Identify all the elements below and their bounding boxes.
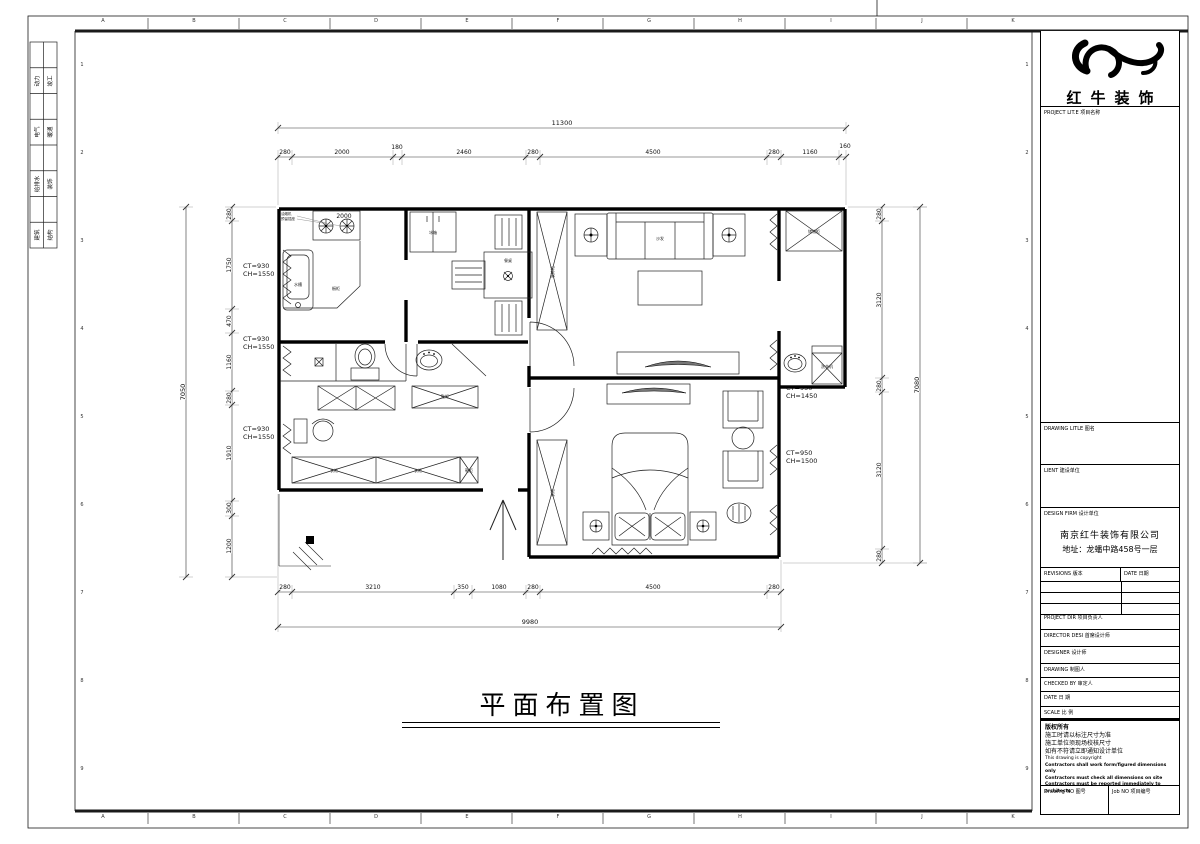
window-tag: CH=1450: [786, 392, 817, 400]
director-section: DIRECTOR DESI 首席设计师: [1041, 630, 1179, 647]
coffee-table: [638, 271, 702, 305]
table-lamp-icon: [504, 272, 513, 281]
side-table: [713, 214, 745, 256]
project-title-label: PROJECT LIT.E 项目名称: [1041, 107, 1179, 118]
drawing-by-label: DRAWING 制图人: [1041, 664, 1179, 675]
client-label: LIENT 建设单位: [1041, 465, 1179, 476]
dining-chair: [495, 215, 522, 249]
bedroom: [537, 384, 763, 545]
drawing-no-label: Drawing NO 图号: [1041, 786, 1109, 814]
dim-label: 2460: [456, 149, 471, 156]
wardrobe: [292, 457, 460, 483]
window-coil: [283, 424, 291, 454]
dim-label: 280: [527, 584, 539, 591]
grid-number: 7: [77, 590, 87, 596]
armchair: [723, 451, 763, 488]
label-counter: 橱柜: [332, 285, 340, 291]
dim-label: 1750: [226, 257, 233, 272]
grid-letter: D: [369, 18, 383, 24]
dim-label: 350: [457, 584, 469, 591]
grid-letter: B: [187, 814, 201, 820]
grid-number: 9: [1022, 766, 1032, 772]
washbasin: [784, 354, 806, 372]
dim-right-overall: 7080: [913, 377, 921, 394]
grid-letter: A: [96, 18, 110, 24]
door-living: [530, 322, 574, 366]
revision-row: [1041, 582, 1179, 593]
title-underline-thin: [402, 727, 720, 728]
window-tag: CT=930: [243, 425, 269, 433]
dim-label: 300: [226, 502, 233, 514]
cabinet: [318, 386, 395, 410]
window-coil: [770, 214, 777, 250]
round-table: [732, 427, 754, 449]
grid-letter: I: [824, 814, 838, 820]
job-no-label: Job NO 项目编号: [1109, 786, 1179, 814]
counter-edge: [283, 241, 360, 308]
window-tag: CH=1550: [243, 433, 274, 441]
revisions-label: REVISIONS 版本: [1041, 568, 1121, 581]
entry-arrow: [490, 500, 516, 560]
dim-label: 3210: [365, 584, 380, 591]
discipline-label: 建筑: [33, 229, 41, 241]
project-dir-label: PROJECT DIR 项目负责人: [1041, 612, 1179, 623]
walls: [279, 209, 845, 557]
dim-label: 280: [876, 208, 883, 220]
discipline-label: 暖通: [46, 126, 54, 138]
label-shoe: 鞋柜: [441, 393, 449, 399]
label-sink: 水槽: [294, 281, 302, 287]
dim-label: 4500: [645, 149, 660, 156]
dim-label: 280: [768, 584, 780, 591]
copyright-line: Contractors shall work form/figured dime…: [1045, 763, 1175, 776]
label-wardrobe: 衣柜: [414, 467, 422, 473]
grid-number: 8: [1022, 678, 1032, 684]
toilet: [351, 344, 379, 380]
dim-label: 280: [876, 380, 883, 392]
grid-number: 9: [77, 766, 87, 772]
grid-number: 8: [77, 678, 87, 684]
dim-left-overall: 7050: [179, 384, 187, 401]
window-tag: CT=930: [243, 335, 269, 343]
grid-number: 5: [77, 414, 87, 420]
grid-letter: J: [915, 814, 929, 820]
grid-number: 4: [1022, 326, 1032, 332]
grid-letter: D: [369, 814, 383, 820]
discipline-label: 给排水: [33, 175, 41, 192]
copyright-section: 版权所有 施工时请以标注尺寸为准 施工单位须现场校核尺寸 如有不符请立即通知设计…: [1041, 719, 1179, 786]
dim-label: 280: [226, 208, 233, 220]
director-label: DIRECTOR DESI 首席设计师: [1041, 630, 1179, 641]
label-wardrobe: 衣柜: [330, 467, 338, 473]
tv-icon: [645, 361, 711, 367]
tv-icon: [622, 388, 686, 393]
grid-number: 3: [77, 238, 87, 244]
dim-label: 3120: [876, 462, 883, 477]
balcony: [784, 211, 842, 384]
company-name: 红牛装饰: [1041, 87, 1179, 108]
checked-by-label: CHECKED BY 审定人: [1041, 678, 1179, 689]
dim-label: 280: [768, 149, 780, 156]
nightstand: [583, 512, 609, 540]
project-dir-section: PROJECT DIR 项目负责人: [1041, 612, 1179, 630]
grid-letter: F: [551, 18, 565, 24]
window-coil: [283, 346, 291, 376]
grid-letter: C: [278, 814, 292, 820]
dim-top-overall: 11300: [552, 119, 573, 127]
discipline-label: 结构: [46, 229, 54, 241]
label-dining-table: 餐桌: [504, 257, 512, 263]
window-tag: CT=930: [243, 262, 269, 270]
grid-letter: J: [915, 18, 929, 24]
date-section: DATE 日 期: [1041, 692, 1179, 707]
design-firm-name: 南京红牛装饰有限公司: [1041, 528, 1179, 541]
window-tag: CT=950: [786, 449, 812, 457]
date-label: DATE 日 期: [1041, 692, 1179, 703]
copyright-line: 如有不符请立即通知设计单位: [1045, 748, 1175, 756]
grid-number: 1: [77, 62, 87, 68]
copyright-line: 版权所有: [1045, 724, 1175, 732]
grid-number: 6: [1022, 502, 1032, 508]
checked-by-section: CHECKED BY 审定人: [1041, 678, 1179, 692]
drawing-title-section: DRAWING LITLE 图名: [1041, 423, 1179, 465]
dining-chair: [495, 301, 522, 335]
dim-label: 1910: [226, 445, 233, 460]
dim-label: 1160: [226, 354, 233, 369]
basin-counter: [452, 344, 486, 376]
copyright-line: 施工单位须现场校核尺寸: [1045, 740, 1175, 748]
window-coil: [592, 548, 652, 554]
logo-section: 红牛装饰: [1041, 31, 1179, 107]
window-tag: CH=1550: [243, 270, 274, 278]
drawing-title: 平面布置图: [404, 685, 720, 722]
drawing-title-label: DRAWING LITLE 图名: [1041, 423, 1179, 434]
dim-kitchen-counter: 2000: [336, 213, 351, 220]
dining-chair: [452, 261, 485, 289]
revisions-section: REVISIONS 版本 DATE 日期: [1041, 568, 1179, 612]
dim-label: 3120: [876, 292, 883, 307]
living-room: [537, 212, 745, 374]
design-firm-section: DESIGN FIRM 设计单位 南京红牛装饰有限公司 地址：龙蟠中路458号一…: [1041, 508, 1179, 568]
grid-letter: H: [733, 18, 747, 24]
discipline-label: 电气: [33, 126, 41, 138]
tv-cabinet: [607, 384, 690, 404]
label-cabinet: 装饰柜: [549, 266, 555, 278]
grid-number: 7: [1022, 590, 1032, 596]
dim-label: 280: [876, 550, 883, 562]
entry-marker: [306, 536, 314, 544]
drawing-by-section: DRAWING 制图人: [1041, 664, 1179, 678]
title-underline: [402, 722, 720, 723]
grid-number: 2: [1022, 150, 1032, 156]
armchair: [723, 391, 763, 428]
grid-letter: G: [642, 814, 656, 820]
dim-label: 1080: [491, 584, 506, 591]
bathroom: [280, 344, 486, 381]
pillow: [651, 513, 685, 540]
company-logo-icon: [1051, 33, 1171, 87]
dim-label: 2000: [334, 149, 349, 156]
label-sofa: 沙发: [656, 235, 664, 241]
grid-letter: K: [1006, 18, 1020, 24]
door-bedroom: [530, 388, 574, 432]
kitchen: [283, 211, 360, 310]
grid-letter: E: [460, 814, 474, 820]
dim-label: 4500: [645, 584, 660, 591]
label-fridge: 冰箱: [429, 229, 437, 235]
scale-section: SCALE 比 例: [1041, 707, 1179, 719]
side-table: [575, 214, 607, 256]
design-firm-label: DESIGN FIRM 设计单位: [1041, 508, 1179, 519]
copyright-line: 施工时请以标注尺寸为准: [1045, 732, 1175, 740]
grid-number: 1: [1022, 62, 1032, 68]
dim-label: 160: [839, 143, 851, 150]
grid-letter: E: [460, 18, 474, 24]
discipline-label: 竣工: [46, 75, 54, 87]
grid-number: 5: [1022, 414, 1032, 420]
window-tag: CH=1550: [243, 343, 274, 351]
window-coil: [770, 445, 777, 475]
dim-label: 470: [226, 315, 233, 327]
door-bathroom: [385, 344, 417, 376]
project-title-section: PROJECT LIT.E 项目名称: [1041, 107, 1179, 423]
revision-row: [1041, 593, 1179, 604]
discipline-strip: [30, 42, 57, 248]
window-coil: [770, 340, 777, 370]
nightstand: [690, 512, 716, 540]
grid-letter: K: [1006, 814, 1020, 820]
grid-letter: B: [187, 18, 201, 24]
grid-letter: C: [278, 18, 292, 24]
designer-label: DESIGNER 设计师: [1041, 647, 1179, 658]
grid-number: 4: [77, 326, 87, 332]
client-section: LIENT 建设单位: [1041, 465, 1179, 508]
grid-number: 2: [77, 150, 87, 156]
grid-letter: A: [96, 814, 110, 820]
stool: [727, 503, 751, 523]
grid-number: 3: [1022, 238, 1032, 244]
discipline-label: 动力: [33, 75, 41, 86]
pillow: [615, 513, 649, 540]
discipline-label: 装饰: [46, 178, 54, 190]
entry: [279, 494, 516, 570]
label-wardrobe: 衣柜: [549, 489, 555, 497]
label-washer: 洗衣机: [821, 363, 833, 369]
designer-section: DESIGNER 设计师: [1041, 647, 1179, 664]
dim-label: 280: [279, 149, 291, 156]
window-tag: CH=1500: [786, 457, 817, 465]
grid-letter: H: [733, 814, 747, 820]
scale-label: SCALE 比 例: [1041, 707, 1179, 718]
dim-label: 280: [226, 392, 233, 404]
grid-number: 6: [77, 502, 87, 508]
kitchen-note: 预留插座: [281, 216, 295, 221]
floor-drain-icon: [315, 358, 323, 366]
kitchen-note: 油烟机: [281, 211, 292, 216]
washbasin: [416, 350, 442, 370]
dim-label: 1200: [226, 538, 233, 553]
design-firm-address: 地址：龙蟠中路458号一层: [1041, 544, 1179, 555]
grid-letter: I: [824, 18, 838, 24]
grid-letter: F: [551, 814, 565, 820]
label-storage: 储物柜: [808, 228, 820, 234]
label-shoe: 鞋柜: [465, 467, 473, 473]
dim-label: 280: [279, 584, 291, 591]
grid-letter: G: [642, 18, 656, 24]
dimension-labels: 11300 280 2000 180 2460 280 4500 280 116…: [179, 119, 921, 626]
title-block: 红牛装饰 PROJECT LIT.E 项目名称 DRAWING LITLE 图名…: [1040, 31, 1180, 815]
furniture-labels: 油烟机 预留插座 水槽 橱柜 冰箱 餐桌 沙发 装饰柜 储物柜 洗衣机 衣柜 衣…: [281, 211, 833, 497]
dim-bottom-overall: 9980: [522, 618, 539, 626]
dim-label: 1160: [802, 149, 817, 156]
hall-chair: [294, 419, 334, 443]
numbers-section: Drawing NO 图号 Job NO 项目编号: [1041, 786, 1179, 815]
burner-icon: [319, 219, 333, 233]
bed: [612, 433, 688, 545]
dim-label: 280: [527, 149, 539, 156]
porch-lines: [279, 494, 331, 570]
revisions-date-label: DATE 日期: [1121, 568, 1179, 581]
dim-label: 180: [391, 144, 403, 151]
window-coil: [770, 505, 777, 535]
hallway: [292, 386, 478, 483]
